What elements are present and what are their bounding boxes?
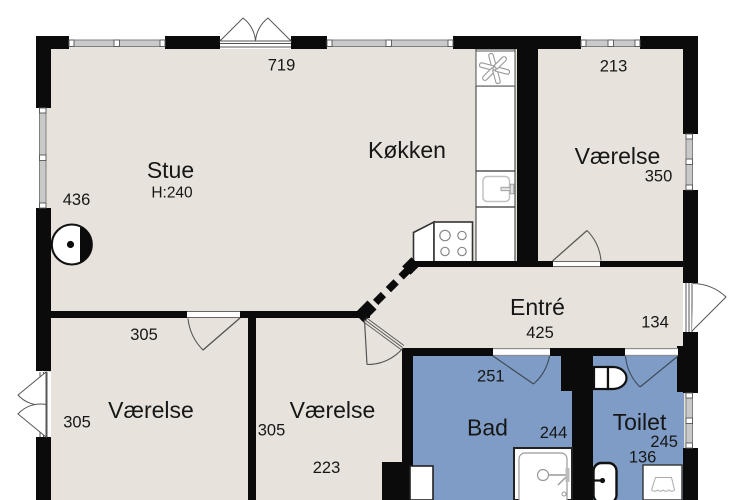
svg-text:350: 350 (645, 168, 673, 186)
svg-text:Værelse: Værelse (290, 397, 376, 423)
svg-text:Entré: Entré (510, 294, 565, 320)
svg-text:Køkken: Køkken (368, 137, 446, 163)
svg-text:223: 223 (313, 459, 341, 477)
svg-text:134: 134 (641, 314, 669, 332)
svg-text:Toilet: Toilet (613, 409, 667, 435)
svg-text:436: 436 (63, 191, 91, 209)
svg-text:213: 213 (600, 58, 628, 76)
svg-text:Bad: Bad (467, 415, 508, 441)
svg-text:136: 136 (629, 449, 657, 467)
svg-text:Stue: Stue (147, 157, 194, 183)
svg-text:719: 719 (268, 57, 296, 75)
svg-text:Værelse: Værelse (108, 397, 194, 423)
svg-text:305: 305 (258, 422, 286, 440)
svg-text:244: 244 (540, 424, 568, 442)
svg-text:305: 305 (130, 326, 158, 344)
svg-text:251: 251 (477, 368, 505, 386)
svg-text:425: 425 (526, 324, 554, 342)
svg-text:Værelse: Værelse (575, 143, 661, 169)
svg-text:H:240: H:240 (151, 185, 193, 202)
svg-text:305: 305 (63, 414, 91, 432)
